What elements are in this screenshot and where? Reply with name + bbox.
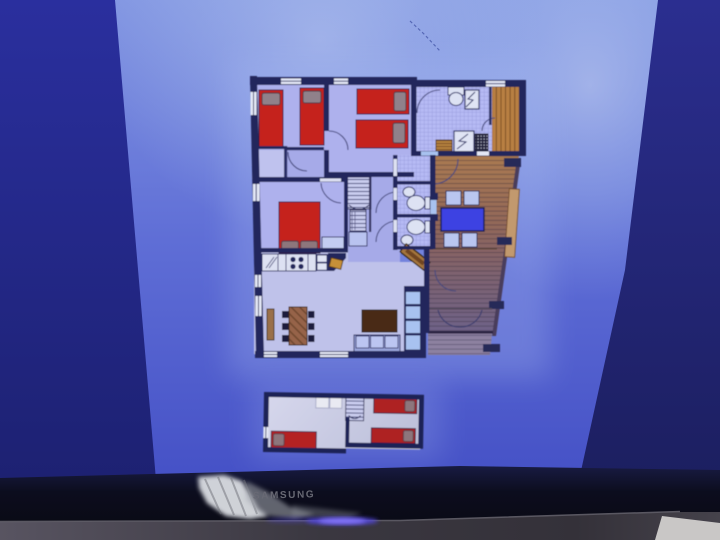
svg-text:SAMSUNG: SAMSUNG xyxy=(253,489,316,502)
